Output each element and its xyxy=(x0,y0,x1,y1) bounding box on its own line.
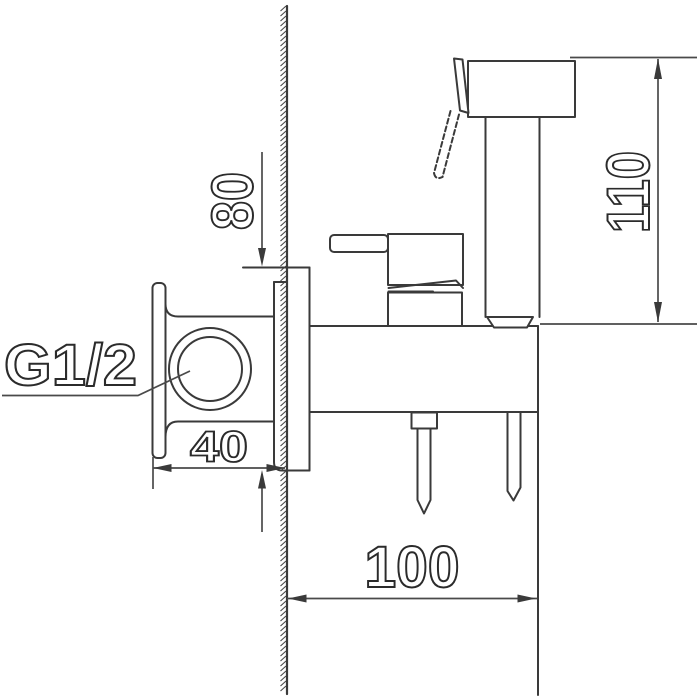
valve-web-top xyxy=(166,304,275,317)
thread-port-outer-circle xyxy=(169,328,251,410)
dim-110-arrow-up xyxy=(654,59,662,80)
valve-flange xyxy=(153,283,166,458)
spray-nozzle-tip xyxy=(487,317,533,328)
dimension-100: 100 xyxy=(287,535,537,603)
handle-lever-arm xyxy=(330,235,388,252)
screw-shaft xyxy=(418,429,431,514)
cartridge-base xyxy=(388,293,462,327)
drawing-svg: 80 110 G1/2 40 100 xyxy=(0,0,700,700)
spray-head xyxy=(434,59,575,328)
mounting-screw xyxy=(412,413,438,514)
wall xyxy=(281,6,288,694)
dim-80-label: 80 xyxy=(201,172,266,230)
dim-80-arrow-up xyxy=(258,470,266,489)
hose-stub xyxy=(508,412,521,501)
wall-plate-outline xyxy=(274,282,310,471)
dim-80-arrow-down xyxy=(258,248,266,267)
wall-hatch-texture xyxy=(281,6,287,691)
dim-110-label: 110 xyxy=(595,151,662,233)
trigger-lever xyxy=(434,111,459,178)
handle-body xyxy=(388,234,463,285)
mixer-handle xyxy=(330,234,463,326)
dim-40-label: 40 xyxy=(190,423,248,472)
dim-40-arrow-left xyxy=(153,464,172,472)
dim-100-label: 100 xyxy=(365,535,460,600)
dim-100-arrow-right xyxy=(518,595,537,603)
holder-box xyxy=(310,326,539,695)
dimension-40: 40 xyxy=(153,423,285,490)
screw-head xyxy=(412,413,438,429)
technical-drawing-canvas: 80 110 G1/2 40 100 xyxy=(0,0,700,700)
hose-stub-lines xyxy=(508,412,521,501)
thread-label: G1/2 xyxy=(4,333,137,398)
trigger-plate xyxy=(454,59,469,114)
dim-110-arrow-down xyxy=(654,302,662,323)
spray-head-body xyxy=(468,61,575,117)
dim-100-arrow-left xyxy=(288,595,307,603)
